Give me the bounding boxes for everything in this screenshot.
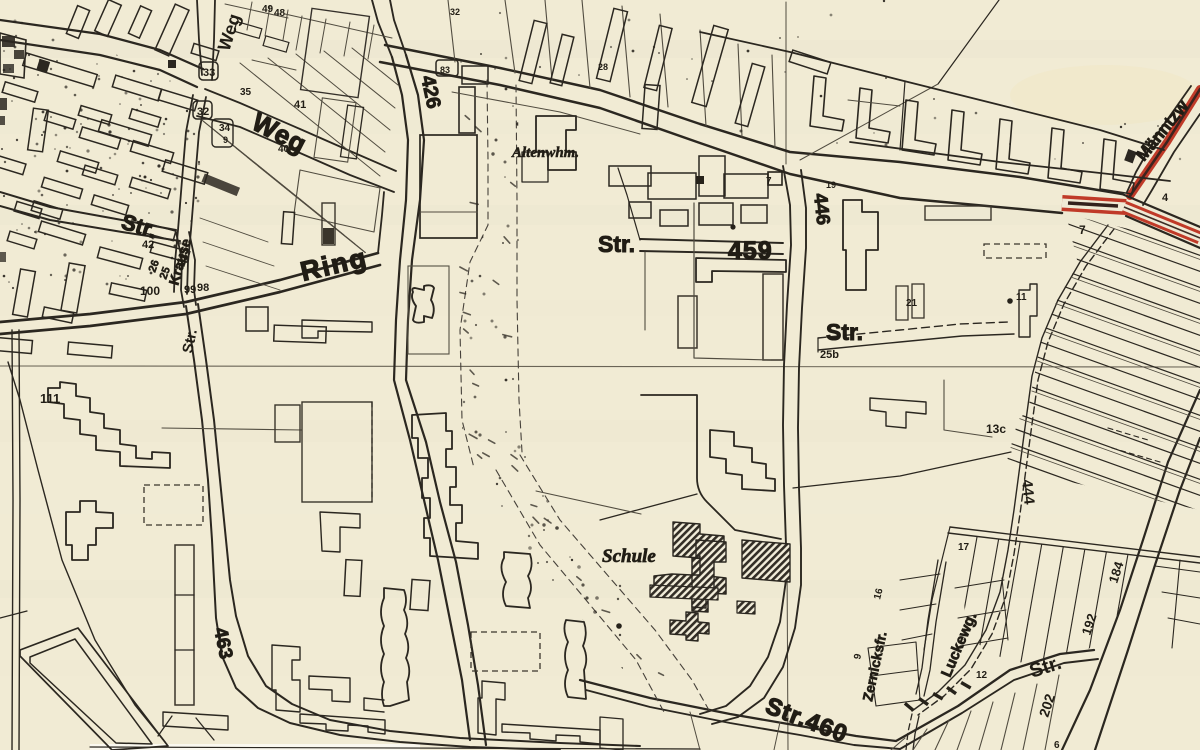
- svg-text:7: 7: [766, 176, 772, 187]
- svg-text:28: 28: [598, 62, 608, 72]
- svg-text:111: 111: [40, 391, 60, 406]
- svg-text:100: 100: [140, 284, 160, 298]
- svg-text:12: 12: [976, 670, 988, 681]
- svg-text:19: 19: [826, 180, 836, 190]
- svg-text:446: 446: [809, 192, 833, 226]
- svg-text:Schule: Schule: [602, 546, 656, 567]
- svg-text:48: 48: [274, 8, 286, 19]
- svg-text:83: 83: [440, 65, 450, 75]
- svg-text:25b: 25b: [820, 349, 839, 361]
- svg-text:17: 17: [958, 542, 970, 553]
- svg-text:9: 9: [223, 135, 228, 145]
- svg-text:35: 35: [240, 87, 252, 98]
- svg-text:49: 49: [262, 4, 274, 15]
- svg-text:444: 444: [1018, 479, 1038, 506]
- svg-text:Str.: Str.: [826, 319, 863, 345]
- svg-text:42: 42: [142, 239, 154, 251]
- svg-text:98: 98: [197, 282, 209, 294]
- svg-text:4: 4: [1162, 192, 1169, 204]
- svg-text:7: 7: [1079, 223, 1086, 237]
- svg-text:32: 32: [450, 7, 460, 17]
- svg-text:99: 99: [184, 284, 196, 296]
- svg-text:33: 33: [203, 67, 215, 79]
- svg-text:13c: 13c: [986, 422, 1006, 436]
- svg-text:6: 6: [1054, 740, 1060, 750]
- svg-text:34: 34: [219, 123, 231, 134]
- svg-text:40: 40: [278, 144, 290, 155]
- svg-text:32: 32: [197, 106, 209, 118]
- svg-text:41: 41: [294, 99, 306, 111]
- svg-text:11: 11: [1016, 292, 1027, 303]
- svg-text:Str.: Str.: [598, 231, 635, 257]
- svg-text:21: 21: [906, 298, 918, 309]
- svg-text:Altenwhm.: Altenwhm.: [511, 145, 579, 161]
- svg-text:459: 459: [728, 237, 773, 265]
